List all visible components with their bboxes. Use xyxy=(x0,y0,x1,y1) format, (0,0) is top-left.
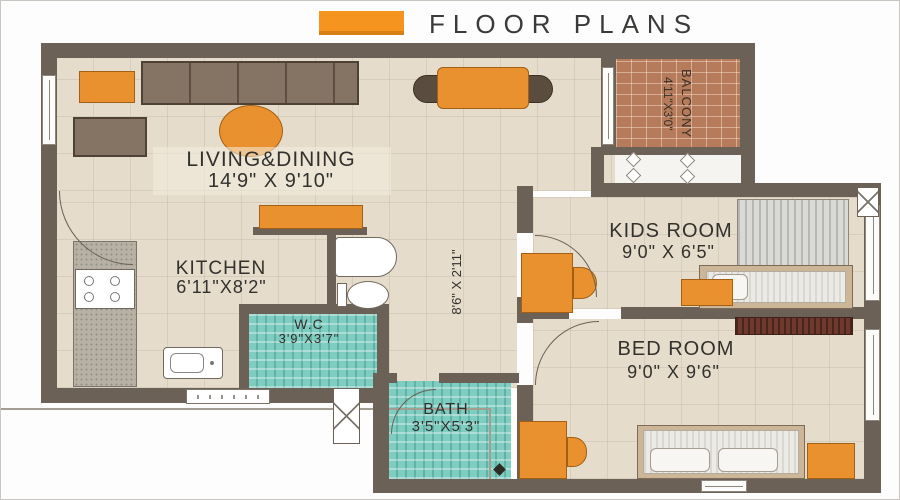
living-room-label: LIVING&DINING xyxy=(151,149,391,172)
side-table xyxy=(79,71,135,103)
page-title: FLOOR PLANS xyxy=(429,9,699,40)
bath-label: BATH xyxy=(396,401,496,418)
wall-bed-bottom xyxy=(517,479,881,493)
balcony-label: BALCONY xyxy=(679,69,694,138)
window-balcony xyxy=(602,67,614,145)
shaft-marker-kids xyxy=(857,187,879,217)
wall-top xyxy=(41,43,747,58)
wall-wc-left xyxy=(239,304,249,390)
wall-right-upper xyxy=(741,43,755,191)
master-pillow-right xyxy=(718,448,778,472)
wall-bath-bottom xyxy=(373,479,521,493)
kids-nightstand xyxy=(681,279,733,306)
sink-tap-icon xyxy=(210,361,214,365)
window-bed-right xyxy=(865,329,880,421)
legend-swatch xyxy=(319,11,404,35)
wall-bath-top-b xyxy=(439,373,519,383)
master-bed xyxy=(637,425,805,479)
wall-bath-top-a xyxy=(373,373,397,383)
entry-door-marker xyxy=(333,388,360,444)
kitchen-sink xyxy=(163,347,223,379)
wall-balcony-stub xyxy=(591,147,604,197)
burner-icon xyxy=(110,292,120,302)
window-kids-right xyxy=(865,205,880,301)
balcony-dims: 4'11"X3'0" xyxy=(661,77,675,131)
wc-dims: 3'9"X3'7" xyxy=(251,332,367,346)
tv-unit xyxy=(259,205,363,229)
dresser xyxy=(735,317,853,335)
burner-icon xyxy=(84,276,94,286)
toilet-tank xyxy=(337,283,347,307)
kids-room-dims: 9'0" X 6'5" xyxy=(576,243,761,262)
passage-dims: 8'6" X 2'11" xyxy=(449,222,467,342)
window-living-left xyxy=(42,75,56,145)
bed-room-dims: 9'0" X 9'6" xyxy=(581,363,766,382)
window-bed-bottom xyxy=(701,480,747,492)
bath-dims: 3'5"X5'3" xyxy=(389,419,503,435)
burner-icon xyxy=(84,292,94,302)
kids-room-label: KIDS ROOM xyxy=(576,221,766,243)
bed-room-label: BED ROOM xyxy=(581,339,771,361)
kitchen-dims: 6'11"X8'2" xyxy=(139,278,304,297)
master-nightstand xyxy=(807,443,855,479)
wall-bath-left xyxy=(373,379,389,493)
toilet xyxy=(347,281,389,309)
balcony-label-group: BALCONY 4'11"X3'0" xyxy=(647,59,695,149)
floor-plan-canvas: FLOOR PLANS xyxy=(0,0,900,500)
master-pillow-left xyxy=(650,448,710,472)
dining-table xyxy=(437,67,529,109)
dining-chair-left xyxy=(413,75,439,103)
wc-label: W.C xyxy=(259,317,359,332)
master-desk xyxy=(519,421,567,479)
armchair xyxy=(73,117,147,157)
entry-threshold xyxy=(186,389,270,404)
wall-kids-top xyxy=(591,183,881,197)
washbasin xyxy=(335,237,397,277)
living-room-dims: 14'9" X 9'10" xyxy=(151,171,391,193)
burner-icon xyxy=(110,276,120,286)
wall-center-a xyxy=(517,186,533,233)
sink-basin xyxy=(170,353,204,373)
stove xyxy=(75,269,135,309)
sofa xyxy=(141,61,359,105)
